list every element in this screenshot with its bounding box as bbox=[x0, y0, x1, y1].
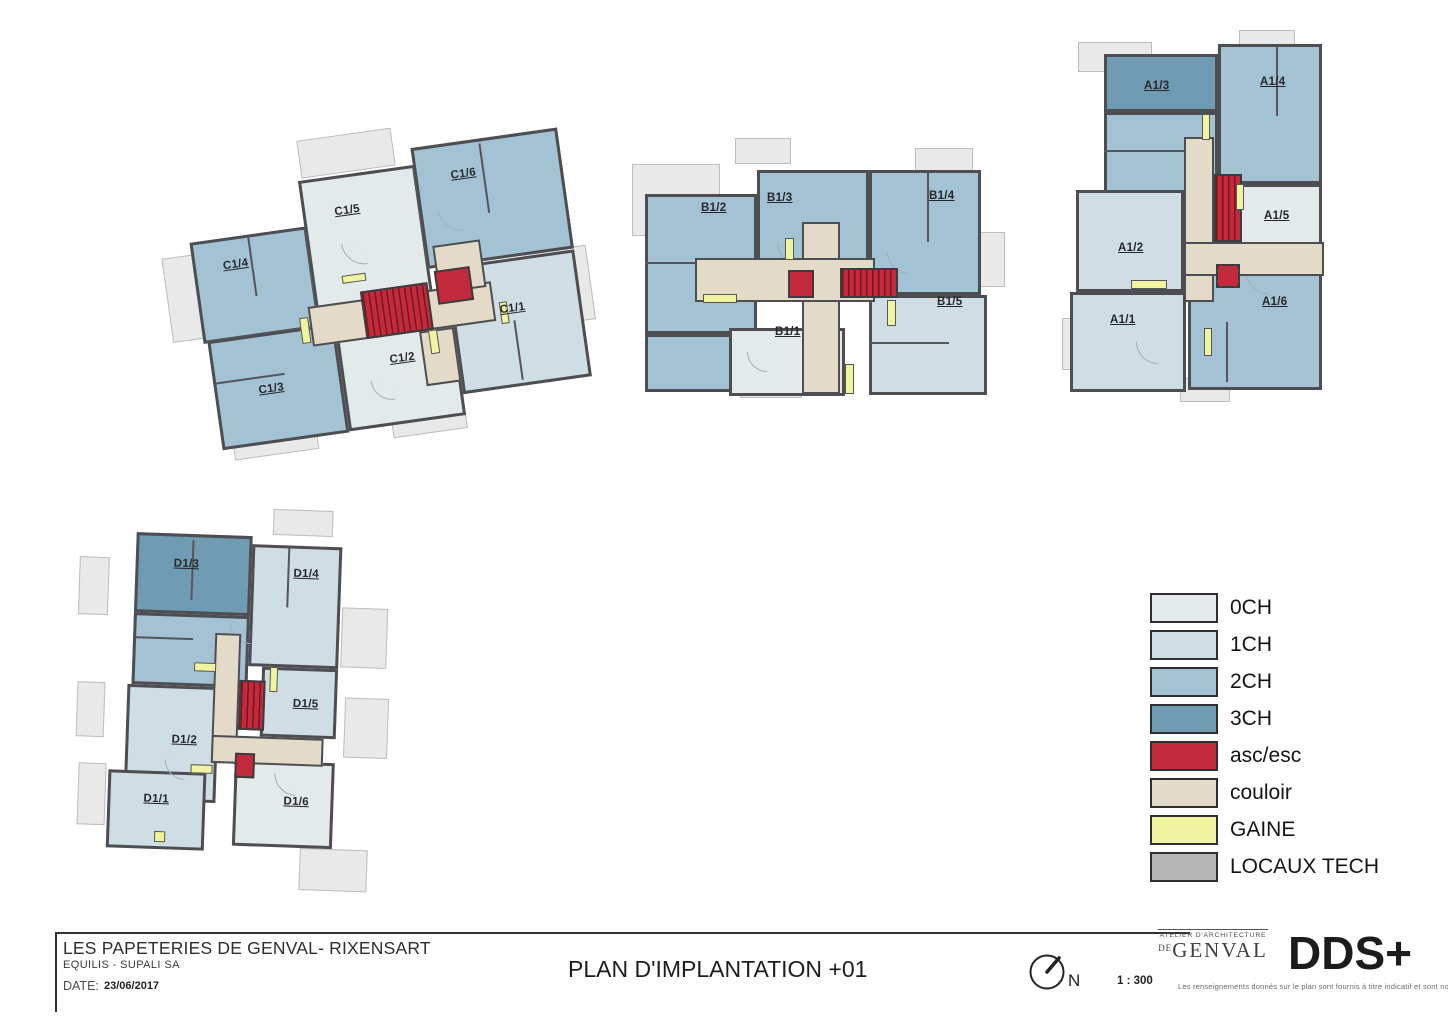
unit-a1-4 bbox=[1218, 44, 1322, 184]
legend: 0CH 1CH 2CH 3CH asc/esc couloir GAINE L bbox=[1150, 593, 1379, 889]
terrace bbox=[343, 698, 389, 759]
unit-label: A1/3 bbox=[1144, 80, 1170, 92]
unit-a1-1 bbox=[1070, 292, 1186, 392]
architect-logo-genval: GENVAL bbox=[1172, 938, 1268, 962]
gaine-shaft bbox=[703, 294, 737, 303]
north-arrow-icon bbox=[1028, 951, 1068, 998]
legend-label: 0CH bbox=[1230, 596, 1272, 620]
legend-item: GAINE bbox=[1150, 815, 1379, 845]
unit-label: A1/2 bbox=[1118, 242, 1144, 254]
terrace bbox=[735, 138, 791, 164]
unit-a1-2 bbox=[1076, 190, 1184, 292]
gaine-shaft bbox=[194, 662, 216, 672]
floor-plan-building-a: A1/3 A1/4 A1/2 A1/5 A1/1 A1/6 bbox=[1076, 42, 1324, 384]
terrace bbox=[78, 556, 110, 615]
legend-label: asc/esc bbox=[1230, 744, 1301, 768]
terrace bbox=[340, 607, 388, 669]
elevator-core bbox=[434, 266, 474, 305]
legend-item: 0CH bbox=[1150, 593, 1379, 623]
unit-label: D1/4 bbox=[293, 568, 319, 581]
unit-d1-4 bbox=[248, 544, 342, 669]
client-name: EQUILIS - SUPALI SA bbox=[63, 959, 180, 971]
gaine-shaft bbox=[1202, 114, 1210, 140]
unit-label: D1/2 bbox=[171, 733, 197, 746]
partition-wall bbox=[1226, 322, 1228, 382]
corridor bbox=[1184, 242, 1324, 276]
dds-plus-logo: DDS+ bbox=[1288, 926, 1412, 980]
unit-label: D1/3 bbox=[173, 557, 199, 570]
partition-wall bbox=[1104, 150, 1184, 152]
gaine-shaft bbox=[1204, 328, 1212, 356]
plan-sheet: C1/4 C1/5 C1/6 C1/3 C1/2 C1/1 B1/2 bbox=[0, 0, 1448, 1024]
terrace bbox=[273, 509, 334, 537]
unit-label: A1/1 bbox=[1110, 314, 1136, 326]
unit-label: B1/4 bbox=[929, 190, 955, 202]
architect-logo-de: DE bbox=[1158, 943, 1172, 953]
terrace bbox=[76, 681, 106, 737]
unit-label: B1/1 bbox=[775, 326, 801, 338]
gaine-shaft bbox=[190, 764, 212, 774]
titleblock-left-rule bbox=[55, 932, 57, 1012]
legend-item: asc/esc bbox=[1150, 741, 1379, 771]
date-label: DATE: bbox=[63, 979, 99, 993]
corridor bbox=[211, 735, 324, 767]
legend-item: 3CH bbox=[1150, 704, 1379, 734]
terrace bbox=[977, 232, 1005, 287]
architect-logo-name: DEGENVAL bbox=[1158, 939, 1268, 962]
gaine-shaft bbox=[845, 364, 854, 394]
unit-label: D1/1 bbox=[143, 793, 169, 806]
stair-elevator-core bbox=[238, 680, 266, 731]
legend-swatch-locaux-tech bbox=[1150, 852, 1218, 882]
elevator-core bbox=[1216, 264, 1240, 288]
stair-elevator-core bbox=[360, 282, 434, 339]
legend-swatch-3ch bbox=[1150, 704, 1218, 734]
unit-label: D1/5 bbox=[293, 698, 319, 711]
plan-title: PLAN D'IMPLANTATION +01 bbox=[568, 956, 867, 983]
legend-swatch-couloir bbox=[1150, 778, 1218, 808]
gaine-shaft bbox=[154, 831, 165, 842]
legend-label: 3CH bbox=[1230, 707, 1272, 731]
partition-wall bbox=[869, 342, 949, 344]
elevator-core bbox=[788, 270, 814, 298]
gaine-shaft bbox=[269, 667, 278, 692]
legend-swatch-0ch bbox=[1150, 593, 1218, 623]
legend-swatch-asc-esc bbox=[1150, 741, 1218, 771]
unit-label: A1/5 bbox=[1264, 210, 1290, 222]
architect-logo: ATELIER D'ARCHITECTURE DEGENVAL bbox=[1158, 929, 1268, 962]
stair-elevator-core bbox=[840, 268, 898, 298]
legend-swatch-1ch bbox=[1150, 630, 1218, 660]
legend-swatch-2ch bbox=[1150, 667, 1218, 697]
floor-plan-building-b: B1/2 B1/3 B1/4 B1/1 B1/5 bbox=[637, 152, 985, 394]
gaine-shaft bbox=[785, 238, 794, 260]
elevator-core bbox=[234, 753, 255, 779]
legend-item: LOCAUX TECH bbox=[1150, 852, 1379, 882]
legend-item: 2CH bbox=[1150, 667, 1379, 697]
north-label: N bbox=[1068, 971, 1080, 991]
gaine-shaft bbox=[1236, 184, 1244, 210]
disclaimer-text: Les renseignements donnés sur le plan so… bbox=[1178, 982, 1448, 991]
gaine-shaft bbox=[1131, 280, 1167, 289]
partition-wall bbox=[927, 172, 929, 242]
unit-label: B1/2 bbox=[701, 202, 727, 214]
terrace bbox=[298, 848, 367, 892]
titleblock-top-rule bbox=[55, 932, 1190, 934]
legend-label: 1CH bbox=[1230, 633, 1272, 657]
legend-label: 2CH bbox=[1230, 670, 1272, 694]
corridor bbox=[802, 222, 840, 394]
legend-item: couloir bbox=[1150, 778, 1379, 808]
unit-label: B1/5 bbox=[937, 296, 963, 308]
floor-plan-building-c: C1/4 C1/5 C1/6 C1/3 C1/2 C1/1 bbox=[181, 133, 589, 448]
unit-label: A1/6 bbox=[1262, 296, 1288, 308]
corridor bbox=[1184, 137, 1214, 302]
legend-swatch-gaine bbox=[1150, 815, 1218, 845]
project-title: LES PAPETERIES DE GENVAL- RIXENSART bbox=[63, 938, 431, 959]
floor-plan-building-d: D1/3 D1/4 D1/2 D1/5 D1/1 D1/6 bbox=[91, 517, 398, 882]
scale-value: 1 : 300 bbox=[1117, 975, 1153, 987]
terrace bbox=[77, 762, 107, 825]
unit-label: B1/3 bbox=[767, 192, 793, 204]
gaine-shaft bbox=[887, 300, 896, 326]
legend-label: GAINE bbox=[1230, 818, 1295, 842]
legend-item: 1CH bbox=[1150, 630, 1379, 660]
legend-label: LOCAUX TECH bbox=[1230, 855, 1379, 879]
legend-label: couloir bbox=[1230, 781, 1292, 805]
unit-label: A1/4 bbox=[1260, 76, 1286, 88]
unit-label: D1/6 bbox=[283, 795, 309, 808]
corridor bbox=[419, 327, 461, 386]
date-value: 23/06/2017 bbox=[104, 980, 159, 992]
